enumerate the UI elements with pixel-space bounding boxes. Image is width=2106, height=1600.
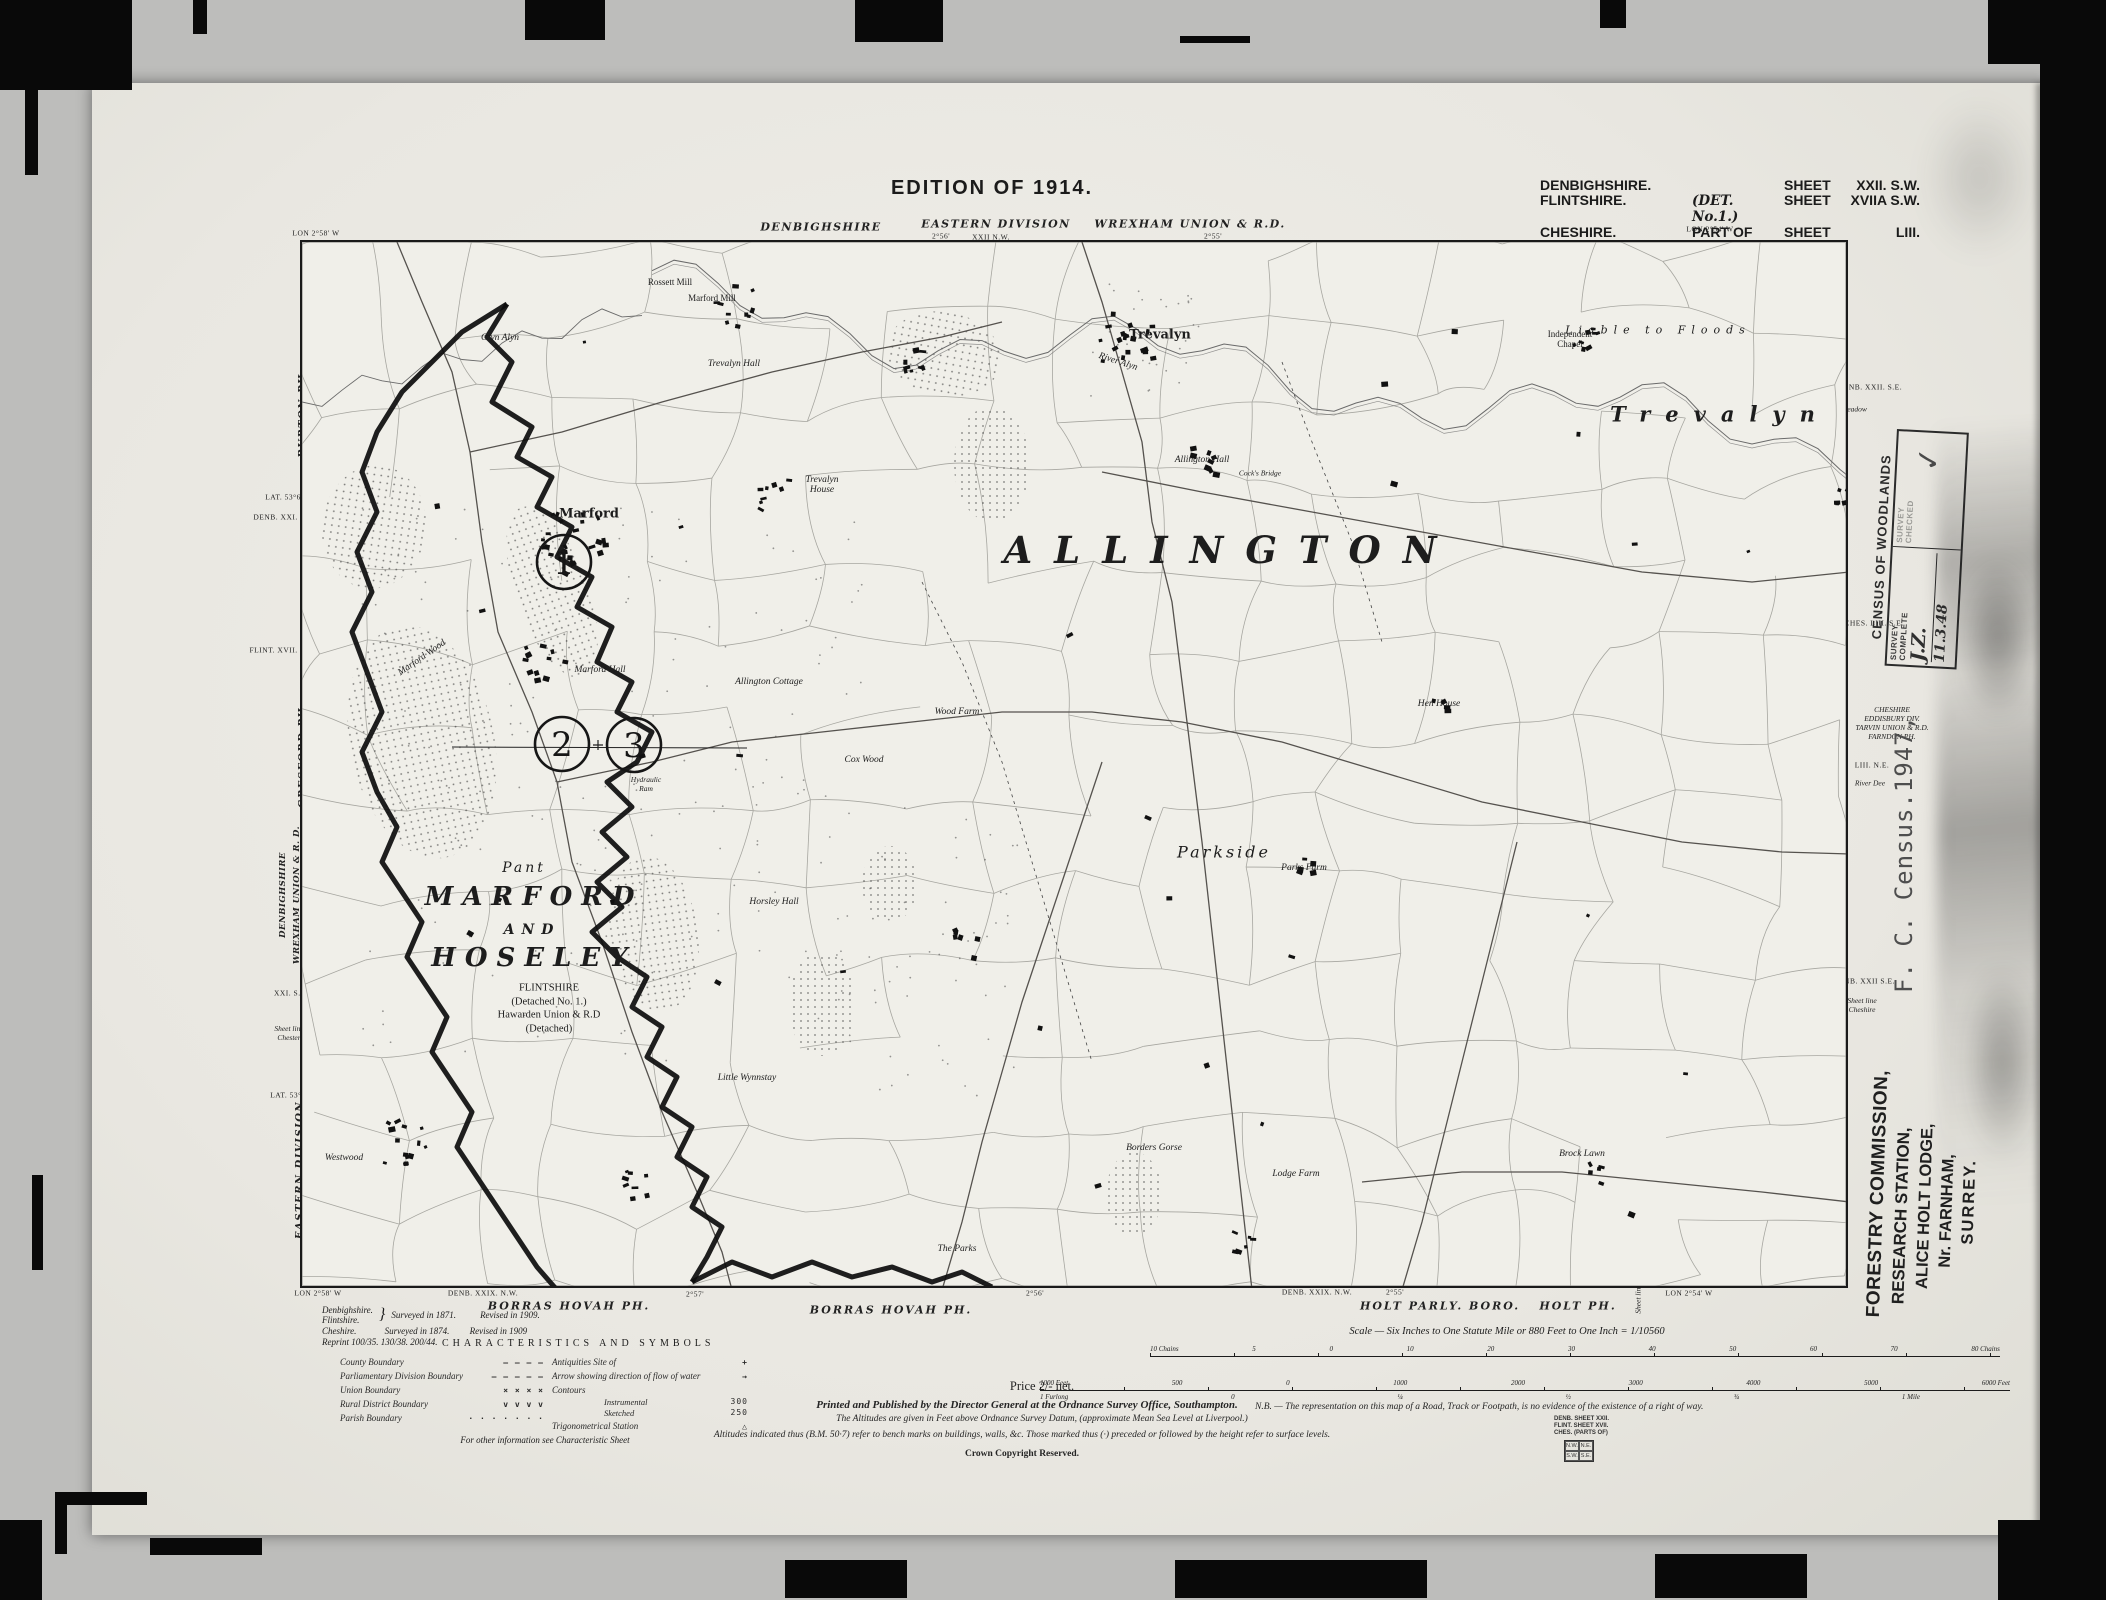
edition-title: EDITION OF 1914. bbox=[792, 177, 1192, 200]
scale-bar-feet: 1000 Feet5000100020003000400050006000 Fe… bbox=[1040, 1379, 2010, 1391]
map-label: Marford Wood bbox=[396, 638, 447, 678]
margin-label: DENBIGHSHIRE bbox=[278, 852, 288, 938]
scale-tick-label: ¾ bbox=[1734, 1393, 1739, 1401]
map-label: Allington Hall bbox=[1175, 455, 1230, 465]
survey-county-2: Cheshire. bbox=[322, 1326, 356, 1336]
sheet-info-row: DENBIGHSHIRE. SHEET XXII. S.W. bbox=[1540, 178, 1870, 193]
brace-glyph: } bbox=[379, 1306, 385, 1324]
map-label: Liable to Floods bbox=[1565, 324, 1751, 337]
sheet-info-row: FLINTSHIRE. (DET. No.1.) SHEET XVIIA S.W… bbox=[1540, 193, 1870, 225]
legend-symbol: — — — — bbox=[503, 1358, 544, 1367]
scale-tick-label: 60 bbox=[1810, 1345, 1817, 1353]
index-quadrant: S.W. bbox=[1565, 1451, 1579, 1461]
scale-tick-label: 50 bbox=[1729, 1345, 1736, 1353]
scale-tick-label: 4000 bbox=[1746, 1379, 1760, 1387]
margin-label: 2°56' bbox=[1026, 1289, 1044, 1298]
margin-label: River Dee bbox=[1855, 779, 1885, 788]
legend-symbol: – – – – – bbox=[492, 1372, 544, 1381]
legend-label: Union Boundary bbox=[340, 1385, 400, 1395]
scale-tick-label: 0 bbox=[1286, 1379, 1290, 1387]
legend-row: Parliamentary Division Boundary– – – – – bbox=[340, 1369, 544, 1383]
map-label: FLINTSHIRE (Detached No. 1.) Hawarden Un… bbox=[498, 982, 601, 1037]
scan-mark bbox=[1998, 1520, 2106, 1600]
map-label: Allington Cottage bbox=[735, 677, 803, 687]
legend-row: Antiquities Site of+ bbox=[552, 1355, 748, 1369]
scale-tick-label: 40 bbox=[1649, 1345, 1656, 1353]
index-diagram-grid: N.W. N.E. S.W. S.E. bbox=[1564, 1440, 1594, 1462]
scan-mark bbox=[1180, 36, 1250, 43]
map-label: Marford Mill bbox=[688, 293, 736, 303]
fc-census-annotation: F. C. Census.1947, bbox=[1890, 738, 1932, 993]
survey-complete-initials: J.Z. bbox=[1907, 552, 1935, 662]
scan-mark bbox=[0, 0, 132, 90]
sheet-word: SHEET bbox=[1784, 225, 1836, 240]
margin-label: 2°57' bbox=[686, 1290, 704, 1299]
scale-tick-label: 70 bbox=[1891, 1345, 1898, 1353]
map-label: Trevalyn Hall bbox=[708, 359, 760, 369]
map-frame: 123 ALLINGTONMARFORDANDHOSELEYTrevalynLi… bbox=[300, 240, 1848, 1288]
map-label: Brock Lawn bbox=[1559, 1149, 1605, 1159]
scale-tick-label: 1 Mile bbox=[1902, 1393, 1920, 1401]
map-label: Borders Gorse bbox=[1126, 1143, 1182, 1153]
legend-label: County Boundary bbox=[340, 1357, 404, 1367]
sheet-detail bbox=[1692, 178, 1784, 193]
scan-mark bbox=[2040, 0, 2106, 1600]
map-label: HOSELEY bbox=[431, 943, 636, 973]
map-label: Little Wynnstay bbox=[718, 1073, 777, 1083]
map-sheet-paper: EDITION OF 1914. DENBIGHSHIRE. SHEET XXI… bbox=[92, 83, 2048, 1535]
map-label: AND bbox=[504, 922, 561, 938]
map-label: Trevalyn House bbox=[806, 475, 839, 495]
margin-label: DENB. XXIX. N.W. bbox=[1282, 1288, 1352, 1297]
legend-label: Antiquities Site of bbox=[552, 1357, 616, 1367]
map-label: Wood Farm bbox=[935, 707, 980, 717]
scale-tick-label: 6000 Feet bbox=[1982, 1379, 2010, 1387]
census-of-woodlands-stamp: CENSUS OF WOODLANDS SURVEY COMPLETE J.Z.… bbox=[1878, 428, 1975, 665]
legend-row: Arrow showing direction of flow of water… bbox=[552, 1369, 748, 1383]
scale-tick-label: 0 bbox=[1329, 1345, 1333, 1353]
scan-mark bbox=[785, 1560, 907, 1598]
map-label: Independent Chapel bbox=[1548, 329, 1592, 349]
sheet-number: LIII. bbox=[1836, 225, 1920, 240]
margin-label: HOLT PH. bbox=[1539, 1300, 1616, 1313]
scale-tick-label: 500 bbox=[1172, 1379, 1183, 1387]
scale-tick-label: 10 bbox=[1407, 1345, 1414, 1353]
sheet-county: DENBIGHSHIRE. bbox=[1540, 178, 1692, 193]
survey-surveyed: Surveyed in 1871. bbox=[391, 1310, 456, 1320]
scale-tick-label: 5 bbox=[1252, 1345, 1256, 1353]
price-note: Price 2/- net. bbox=[962, 1379, 1122, 1394]
map-label: Cox Wood bbox=[845, 755, 884, 765]
scan-mark bbox=[0, 1520, 42, 1600]
scan-mark bbox=[55, 1492, 147, 1505]
index-quadrant: N.E. bbox=[1579, 1441, 1593, 1451]
legend-symbol: · · · · · · · bbox=[468, 1414, 544, 1423]
scan-mark bbox=[55, 1492, 67, 1554]
checkmark-icon: ✓ bbox=[1910, 445, 1947, 473]
map-label: Cock's Bridge bbox=[1239, 469, 1281, 478]
legend-row: Contours bbox=[552, 1383, 748, 1397]
margin-label: LON 2°54' W bbox=[1686, 225, 1733, 234]
sheet-county: CHESHIRE. bbox=[1540, 225, 1692, 240]
map-label: Marford bbox=[559, 507, 619, 522]
scale-tick-label: 3000 bbox=[1629, 1379, 1643, 1387]
map-label: Trevalyn bbox=[1610, 402, 1830, 427]
scan-mark bbox=[1655, 1554, 1807, 1598]
map-label: Hen House bbox=[1418, 699, 1460, 709]
map-label: Marford Hall bbox=[574, 665, 625, 675]
map-label: The Parks bbox=[938, 1244, 977, 1254]
map-label: Parkside bbox=[1177, 843, 1271, 862]
scan-mark bbox=[193, 0, 207, 34]
legend-row: Union Boundary× × × × bbox=[340, 1383, 544, 1397]
legend-row: Rural District Boundaryv v v v bbox=[340, 1397, 544, 1411]
margin-label: EASTERN DIVISION bbox=[921, 218, 1071, 231]
survey-surveyed-2: Surveyed in 1874. bbox=[385, 1326, 450, 1336]
survey-complete-date: 11.3.48 bbox=[1931, 554, 1954, 663]
map-label: Rossett Mill bbox=[648, 277, 692, 287]
margin-label: LIII. N.E. bbox=[1855, 761, 1890, 770]
legend-symbol: v v v v bbox=[503, 1400, 544, 1409]
sheet-word: SHEET bbox=[1784, 178, 1836, 193]
forestry-commission-stamp: FORESTRY COMMISSION, RESEARCH STATION, A… bbox=[1870, 1055, 2020, 1317]
map-label: Horsley Hall bbox=[749, 897, 798, 907]
scale-tick-label: 30 bbox=[1568, 1345, 1575, 1353]
margin-label: LON 2°54' W bbox=[1665, 1289, 1712, 1298]
sheet-county: FLINTSHIRE. bbox=[1540, 193, 1692, 225]
map-label: ALLINGTON bbox=[1003, 528, 1458, 572]
scale-tick-label: 10 Chains bbox=[1150, 1345, 1179, 1353]
map-label: River Alyn bbox=[1097, 351, 1138, 373]
scan-smudge bbox=[1922, 98, 2037, 258]
scan-mark bbox=[855, 0, 943, 42]
legend-row: Parish Boundary· · · · · · · bbox=[340, 1411, 544, 1425]
map-place-labels: ALLINGTONMARFORDANDHOSELEYTrevalynLiable… bbox=[302, 242, 1846, 1286]
margin-label: LON 2°58' W bbox=[292, 229, 339, 238]
legend-label: Contours bbox=[552, 1385, 586, 1395]
scan-mark bbox=[525, 0, 605, 40]
survey-revised: Revised in 1909. bbox=[480, 1310, 540, 1320]
copyright-note: Crown Copyright Reserved. bbox=[922, 1449, 1122, 1459]
sheet-detail: (DET. No.1.) bbox=[1692, 193, 1784, 225]
scale-bar-chains: 10 Chains501020304050607080 Chains bbox=[1150, 1345, 2000, 1357]
legend-label: Rural District Boundary bbox=[340, 1399, 428, 1409]
legend-symbol: × × × × bbox=[503, 1386, 544, 1395]
margin-label: LON 2°58' W bbox=[294, 1289, 341, 1298]
right-of-way-note: N.B. — The representation on this map of… bbox=[1255, 1402, 2047, 1412]
margin-label: HOLT PARLY. BORO. bbox=[1360, 1300, 1520, 1313]
index-quadrant: N.W. bbox=[1565, 1441, 1579, 1451]
index-quadrant: S.E. bbox=[1579, 1451, 1593, 1461]
map-label: Trevalyn bbox=[1129, 328, 1191, 343]
scan-mark bbox=[1175, 1560, 1427, 1598]
scale-tick-label: 2000 bbox=[1511, 1379, 1525, 1387]
legend-boundaries: County Boundary— — — —Parliamentary Divi… bbox=[340, 1355, 544, 1425]
scale-statement: Scale — Six Inches to One Statute Mile o… bbox=[1142, 1326, 1872, 1337]
scan-mark bbox=[150, 1538, 262, 1555]
scan-mark bbox=[32, 1175, 43, 1270]
scan-mark bbox=[1600, 0, 1626, 28]
map-label: Pant bbox=[502, 860, 546, 876]
margin-label: LAT. 53°6' bbox=[265, 493, 303, 502]
altitude-note-1: The Altitudes are given in Feet above Or… bbox=[592, 1414, 1492, 1424]
legend-symbol: + bbox=[742, 1358, 748, 1367]
map-label: Lodge Farm bbox=[1272, 1169, 1319, 1179]
margin-label: DENB. XXIX. N.W. bbox=[448, 1289, 518, 1298]
sheet-number: XVIIA S.W. bbox=[1836, 193, 1920, 225]
legend-label: Parliamentary Division Boundary bbox=[340, 1371, 463, 1381]
margin-label: 2°55' bbox=[1386, 1288, 1404, 1297]
index-diagram-note: DENB. SHEET XXII. FLINT. SHEET XVII. CHE… bbox=[1554, 1416, 1609, 1437]
map-label: Glyn Alyn bbox=[481, 333, 519, 343]
scale-tick-label: 20 bbox=[1487, 1345, 1494, 1353]
altitude-note-2: Altitudes indicated thus (B.M. 50·7) ref… bbox=[522, 1430, 1522, 1440]
survey-counties: Denbighshire. Flintshire. bbox=[322, 1305, 373, 1325]
scale-tick-label: 5000 bbox=[1864, 1379, 1878, 1387]
scanned-map-page: { "edition": "EDITION OF 1914.", "sheet_… bbox=[0, 0, 2106, 1600]
legend-symbol: → bbox=[742, 1372, 748, 1381]
sheet-number: XXII. S.W. bbox=[1836, 178, 1920, 193]
map-label: Westwood bbox=[325, 1153, 363, 1163]
legend-label: Parish Boundary bbox=[340, 1413, 402, 1423]
scale-tick-label: ½ bbox=[1566, 1393, 1571, 1401]
legend-title: CHARACTERISTICS AND SYMBOLS bbox=[442, 1338, 714, 1349]
scale-tick-label: 80 Chains bbox=[1971, 1345, 2000, 1353]
legend-label: Arrow showing direction of flow of water bbox=[552, 1371, 700, 1381]
sheet-word: SHEET bbox=[1784, 193, 1836, 225]
legend-row: County Boundary— — — — bbox=[340, 1355, 544, 1369]
margin-label: Sheet line bbox=[1634, 1284, 1643, 1313]
map-label: MARFORD bbox=[425, 882, 644, 912]
scale-tick-label: 1000 bbox=[1393, 1379, 1407, 1387]
legend-label: Instrumental bbox=[604, 1397, 647, 1408]
margin-label: BORRAS HOVAH PH. bbox=[810, 1304, 972, 1317]
map-label: Hydraulic Ram bbox=[631, 775, 661, 793]
margin-label: WREXHAM UNION & R.D. bbox=[1094, 218, 1285, 231]
map-label: Parks Farm bbox=[1281, 863, 1327, 873]
scan-mark bbox=[25, 55, 38, 175]
margin-label: DENBIGHSHIRE bbox=[760, 221, 881, 234]
survey-revised-2: Revised in 1909 bbox=[470, 1326, 528, 1336]
margin-label: Sheet line Cheshire bbox=[1847, 996, 1876, 1014]
